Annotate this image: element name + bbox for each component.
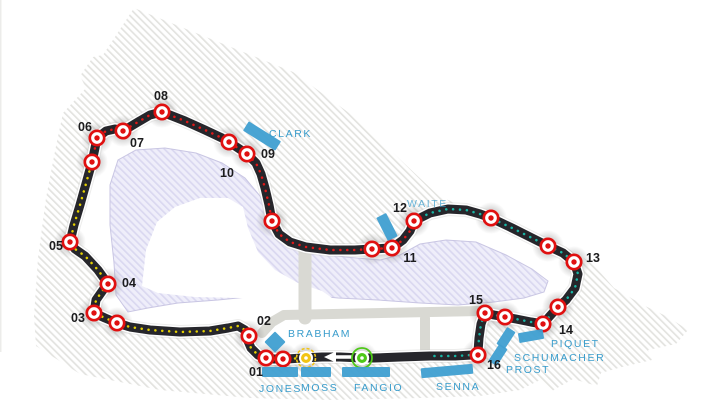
grandstand-label-piquet: PIQUET: [551, 338, 600, 350]
corner-marker-dot: [105, 281, 110, 286]
grandstand-label-schumacher: SCHUMACHER: [514, 352, 605, 364]
start-finish-dot: [360, 356, 364, 360]
corner-number-06: 06: [78, 120, 92, 134]
corner-marker-dot: [114, 320, 119, 325]
corner-marker-dot: [475, 352, 480, 357]
corner-marker-dot: [159, 109, 164, 114]
corner-number-15: 15: [469, 293, 483, 307]
corner-marker-dot: [555, 304, 560, 309]
corner-marker-dot: [369, 246, 374, 251]
corner-number-08: 08: [154, 89, 168, 103]
grandstand-label-senna: SENNA: [436, 381, 480, 393]
corner-marker-dot: [540, 321, 545, 326]
corner-marker-dot: [389, 245, 394, 250]
corner-number-02: 02: [257, 314, 271, 328]
corner-number-16: 16: [487, 358, 501, 372]
grandstand-label-brabham: BRABHAM: [288, 328, 351, 340]
corner-number-05: 05: [49, 239, 63, 253]
grandstand-label-waite: WAITE: [407, 198, 448, 210]
corner-number-13: 13: [586, 251, 600, 265]
grandstand-bar-jones: [262, 367, 298, 377]
grandstand-label-fangio: FANGIO: [354, 382, 403, 394]
grandstand-label-moss: MOSS: [301, 382, 338, 394]
corner-marker-dot: [482, 310, 487, 315]
corner-number-10: 10: [220, 166, 234, 180]
corner-marker-dot: [502, 314, 507, 319]
corner-marker-dot: [226, 139, 231, 144]
corner-marker-dot: [91, 310, 96, 315]
grandstand-label-clark: CLARK: [269, 128, 312, 140]
corner-marker-dot: [280, 356, 285, 361]
corner-marker-dot: [120, 128, 125, 133]
corner-marker-dot: [571, 259, 576, 264]
circuit-map: CLARKWAITEBRABHAMJONESMOSSFANGIOSENNAPRO…: [0, 0, 712, 409]
pole-position-dot: [304, 356, 308, 360]
grandstand-label-jones: JONES: [259, 383, 302, 395]
corner-number-14: 14: [559, 323, 573, 337]
circuit-map-canvas: CLARKWAITEBRABHAMJONESMOSSFANGIOSENNAPRO…: [0, 0, 712, 409]
corner-marker-dot: [67, 239, 72, 244]
grandstand-bar-moss: [301, 367, 331, 377]
corner-marker-dot: [246, 333, 251, 338]
grandstand-label-prost: PROST: [506, 364, 550, 376]
corner-marker-dot: [545, 243, 550, 248]
corner-marker-dot: [269, 218, 274, 223]
corner-number-12: 12: [393, 201, 407, 215]
corner-marker-dot: [89, 159, 94, 164]
corner-marker-dot: [263, 355, 268, 360]
corner-number-01: 01: [249, 365, 263, 379]
corner-number-11: 11: [403, 251, 416, 265]
corner-number-09: 09: [261, 147, 275, 161]
grandstand-bar-fangio: [342, 367, 390, 377]
corner-marker-dot: [94, 135, 99, 140]
page-edge-line: [0, 0, 2, 352]
corner-marker-dot: [244, 151, 249, 156]
corner-marker-dot: [488, 215, 493, 220]
corner-number-07: 07: [130, 136, 144, 150]
corner-number-04: 04: [122, 276, 136, 290]
corner-marker-dot: [411, 218, 416, 223]
corner-number-03: 03: [71, 311, 85, 325]
